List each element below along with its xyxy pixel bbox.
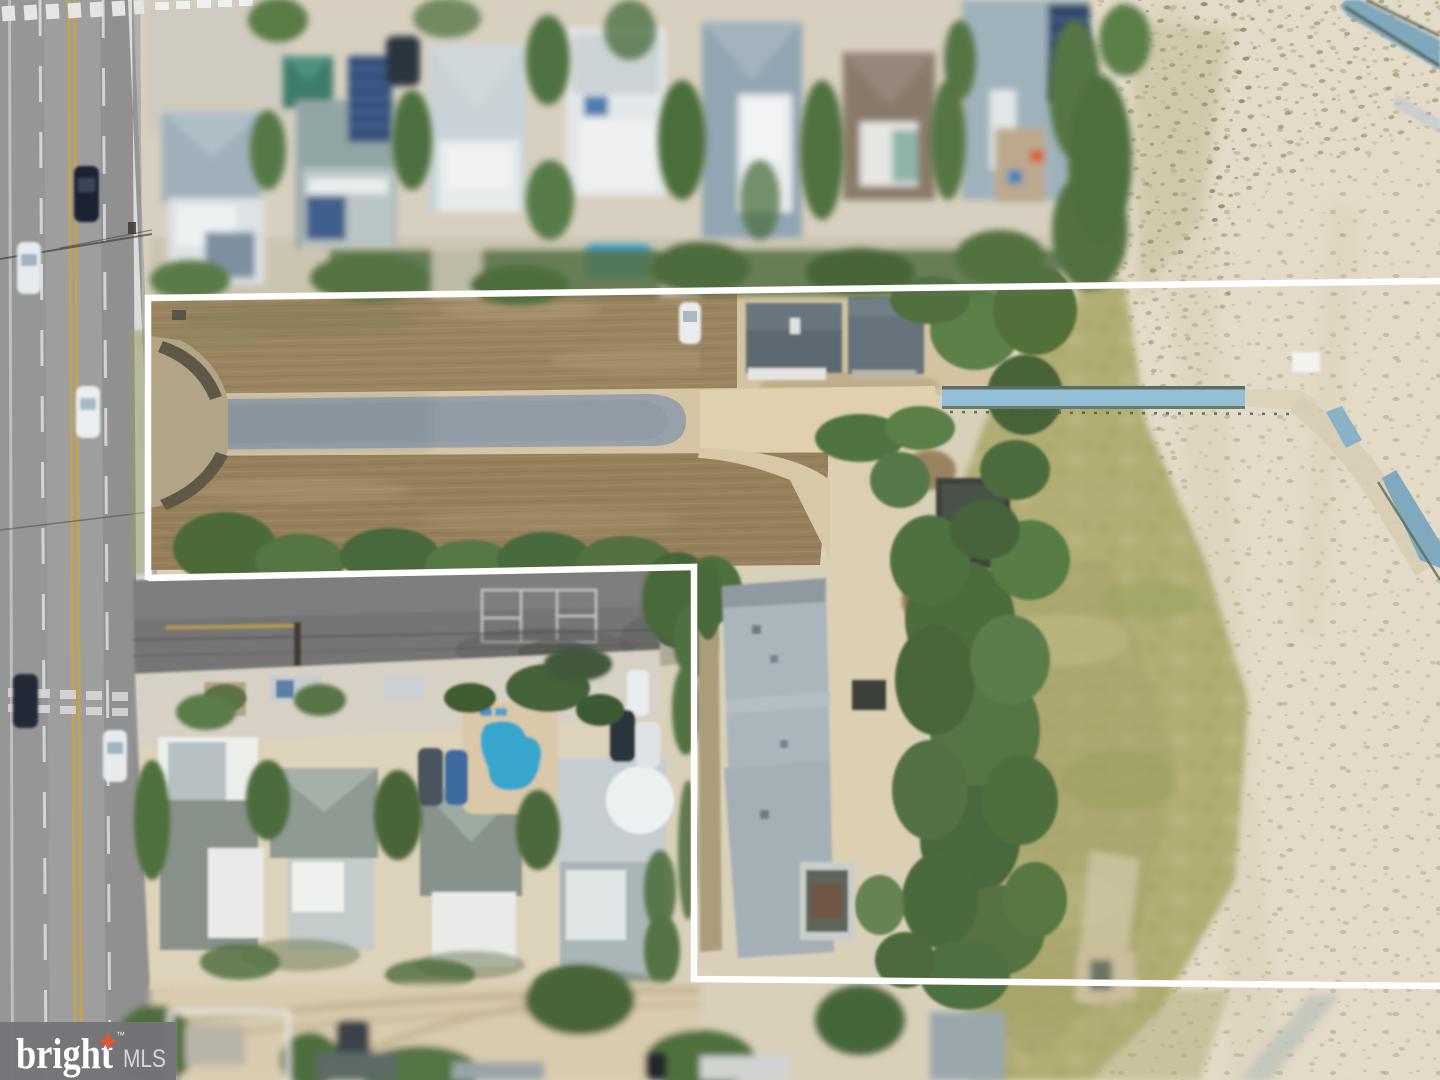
svg-text:MLS: MLS: [123, 1045, 166, 1073]
svg-text:bright: bright: [16, 1031, 114, 1078]
svg-text:™: ™: [116, 1030, 125, 1040]
